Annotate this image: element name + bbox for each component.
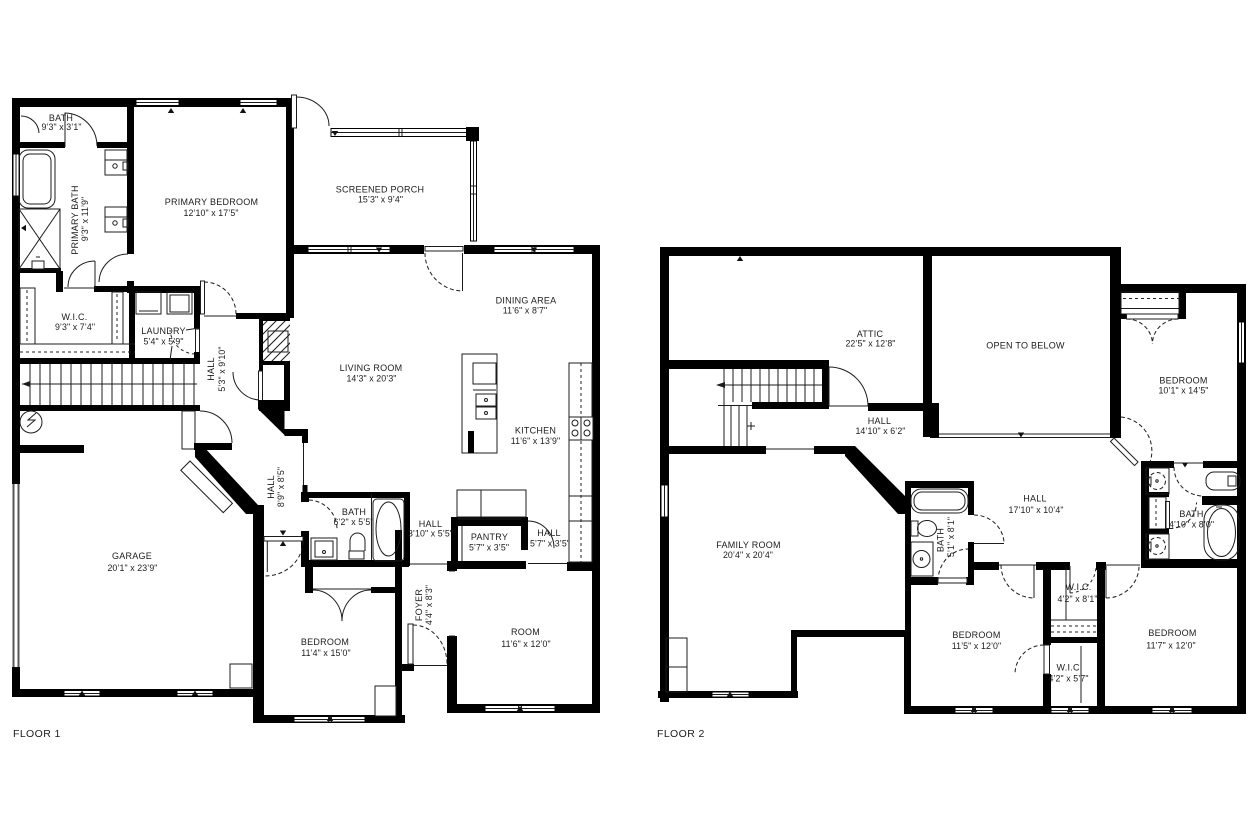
svg-text:11’6" x 13’9": 11’6" x 13’9" <box>511 436 560 446</box>
svg-text:FOYER: FOYER <box>414 589 424 622</box>
svg-text:12’10" x 17’5": 12’10" x 17’5" <box>183 208 238 218</box>
svg-text:W.I.C.: W.I.C. <box>1066 582 1092 592</box>
svg-text:5’7" x 3’5": 5’7" x 3’5" <box>530 539 570 549</box>
svg-text:4’10" x 8’0": 4’10" x 8’0" <box>1169 520 1214 530</box>
svg-text:10’1" x 14’5": 10’1" x 14’5" <box>1158 386 1208 396</box>
svg-text:PRIMARY BEDROOM: PRIMARY BEDROOM <box>165 197 258 207</box>
svg-text:DINING AREA: DINING AREA <box>496 295 557 305</box>
svg-text:HALL: HALL <box>537 528 561 538</box>
svg-text:BATH: BATH <box>1179 509 1203 519</box>
svg-text:PANTRY: PANTRY <box>471 532 508 542</box>
svg-text:22’5" x 12’8": 22’5" x 12’8" <box>845 339 895 349</box>
svg-text:LAUNDRY: LAUNDRY <box>141 326 186 336</box>
svg-text:ATTIC: ATTIC <box>857 329 884 339</box>
svg-text:BEDROOM: BEDROOM <box>301 637 349 647</box>
svg-text:14’10" x 6’2": 14’10" x 6’2" <box>855 426 905 436</box>
svg-text:11’5" x 12’0": 11’5" x 12’0" <box>952 641 1001 651</box>
svg-text:5’4" x 5’9": 5’4" x 5’9" <box>143 337 183 347</box>
svg-text:11’7" x 12’0": 11’7" x 12’0" <box>1146 641 1195 651</box>
svg-text:17’10" x 10’4": 17’10" x 10’4" <box>1008 505 1063 515</box>
svg-text:8’9" x 8’5": 8’9" x 8’5" <box>276 467 286 507</box>
svg-text:4’2" x 5’7": 4’2" x 5’7" <box>1048 674 1088 684</box>
svg-text:3’10" x 5’5": 3’10" x 5’5" <box>408 529 453 539</box>
svg-text:FLOOR 2: FLOOR 2 <box>657 728 705 740</box>
svg-text:4’2" x 8’1": 4’2" x 8’1" <box>1057 594 1097 604</box>
svg-text:BEDROOM: BEDROOM <box>952 630 1000 640</box>
svg-text:HALL: HALL <box>1023 494 1047 504</box>
svg-text:FLOOR 1: FLOOR 1 <box>13 728 61 740</box>
svg-text:LIVING ROOM: LIVING ROOM <box>340 363 403 373</box>
svg-text:5’1" x 8’1": 5’1" x 8’1" <box>946 517 956 557</box>
svg-text:PRIMARY BATH: PRIMARY BATH <box>70 185 80 255</box>
svg-text:4’4" x 8’3": 4’4" x 8’3" <box>424 585 434 625</box>
svg-text:11’6" x 8’7": 11’6" x 8’7" <box>503 306 547 316</box>
svg-text:SCREENED PORCH: SCREENED PORCH <box>336 185 425 195</box>
svg-text:BATH: BATH <box>342 507 366 517</box>
svg-text:BATH: BATH <box>936 528 946 552</box>
svg-text:9’3" x 3’1": 9’3" x 3’1" <box>41 122 81 132</box>
svg-text:HALL: HALL <box>206 357 216 381</box>
svg-text:W.I.C.: W.I.C. <box>62 312 88 322</box>
svg-text:9’3" x 7’4": 9’3" x 7’4" <box>55 322 95 332</box>
svg-text:20’4" x 20’4": 20’4" x 20’4" <box>723 550 773 560</box>
svg-text:HALL: HALL <box>266 475 276 499</box>
svg-text:14’3" x 20’3": 14’3" x 20’3" <box>346 374 396 384</box>
svg-text:ROOM: ROOM <box>511 627 540 637</box>
svg-text:BEDROOM: BEDROOM <box>1159 376 1207 386</box>
svg-text:FAMILY ROOM: FAMILY ROOM <box>716 540 780 550</box>
svg-text:5’3" x 9’10": 5’3" x 9’10" <box>217 346 227 391</box>
svg-text:HALL: HALL <box>868 416 892 426</box>
svg-text:KITCHEN: KITCHEN <box>515 425 556 435</box>
svg-text:9’3" x 11’9": 9’3" x 11’9" <box>80 197 90 241</box>
svg-text:W.I.C.: W.I.C. <box>1057 663 1083 673</box>
svg-text:HALL: HALL <box>419 519 443 529</box>
svg-text:15’3" x 9’4": 15’3" x 9’4" <box>358 195 403 205</box>
svg-text:11’6" x 12’0": 11’6" x 12’0" <box>501 639 550 649</box>
svg-text:GARAGE: GARAGE <box>112 551 152 561</box>
svg-text:20’1" x 23’9": 20’1" x 23’9" <box>107 563 157 573</box>
svg-text:5’7" x 3’5": 5’7" x 3’5" <box>469 543 509 553</box>
svg-text:OPEN TO BELOW: OPEN TO BELOW <box>986 341 1065 351</box>
svg-text:BEDROOM: BEDROOM <box>1148 628 1196 638</box>
svg-text:11’4" x 15’0": 11’4" x 15’0" <box>301 648 350 658</box>
svg-text:6’2" x 5’5": 6’2" x 5’5" <box>333 517 373 527</box>
